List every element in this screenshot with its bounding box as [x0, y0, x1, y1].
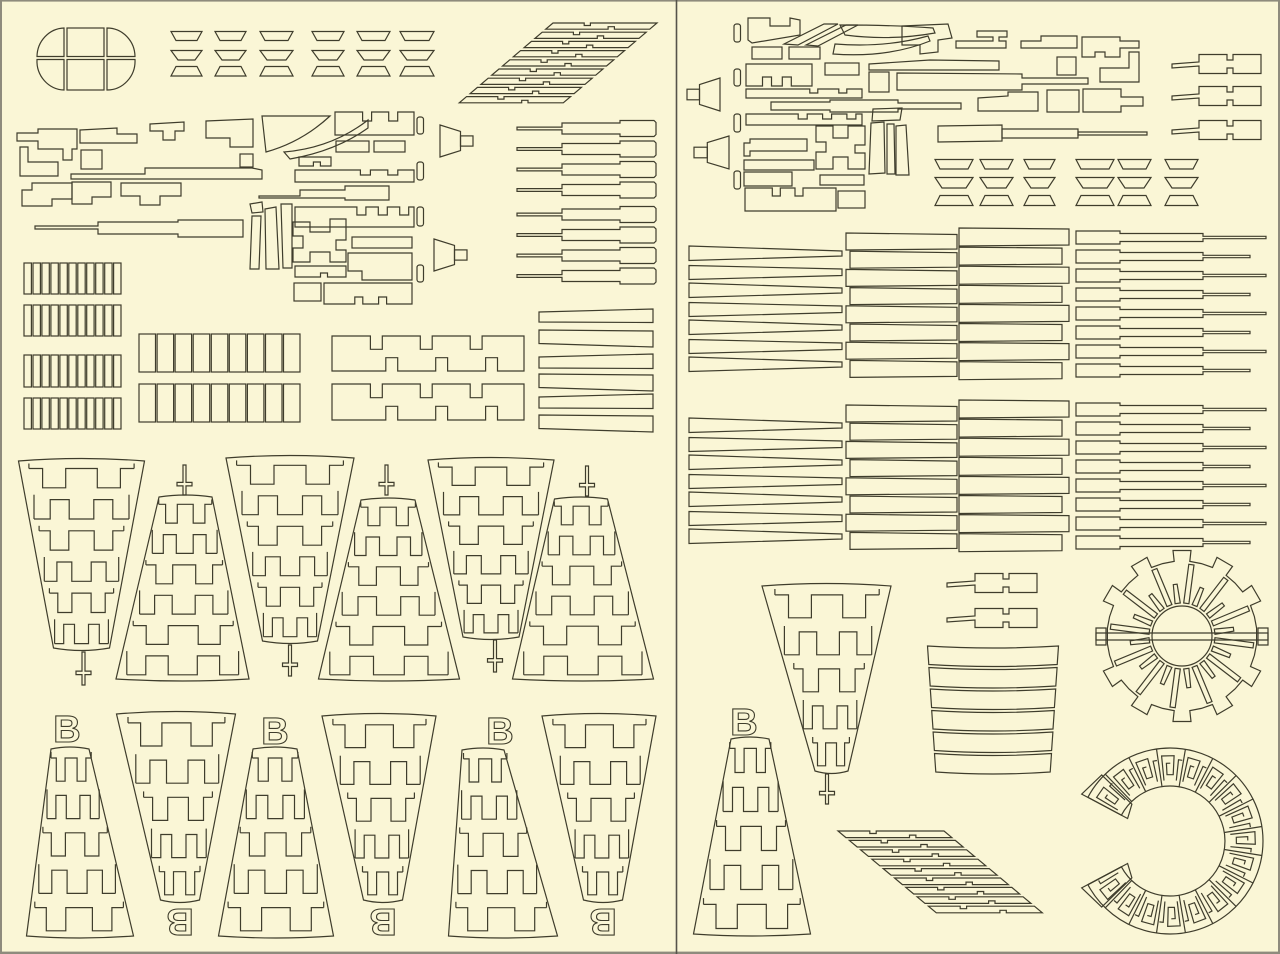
svg-text:B: B — [53, 709, 80, 751]
svg-text:B: B — [589, 900, 616, 942]
svg-text:B: B — [369, 900, 396, 942]
svg-text:B: B — [166, 900, 193, 942]
svg-text:B: B — [486, 711, 513, 753]
